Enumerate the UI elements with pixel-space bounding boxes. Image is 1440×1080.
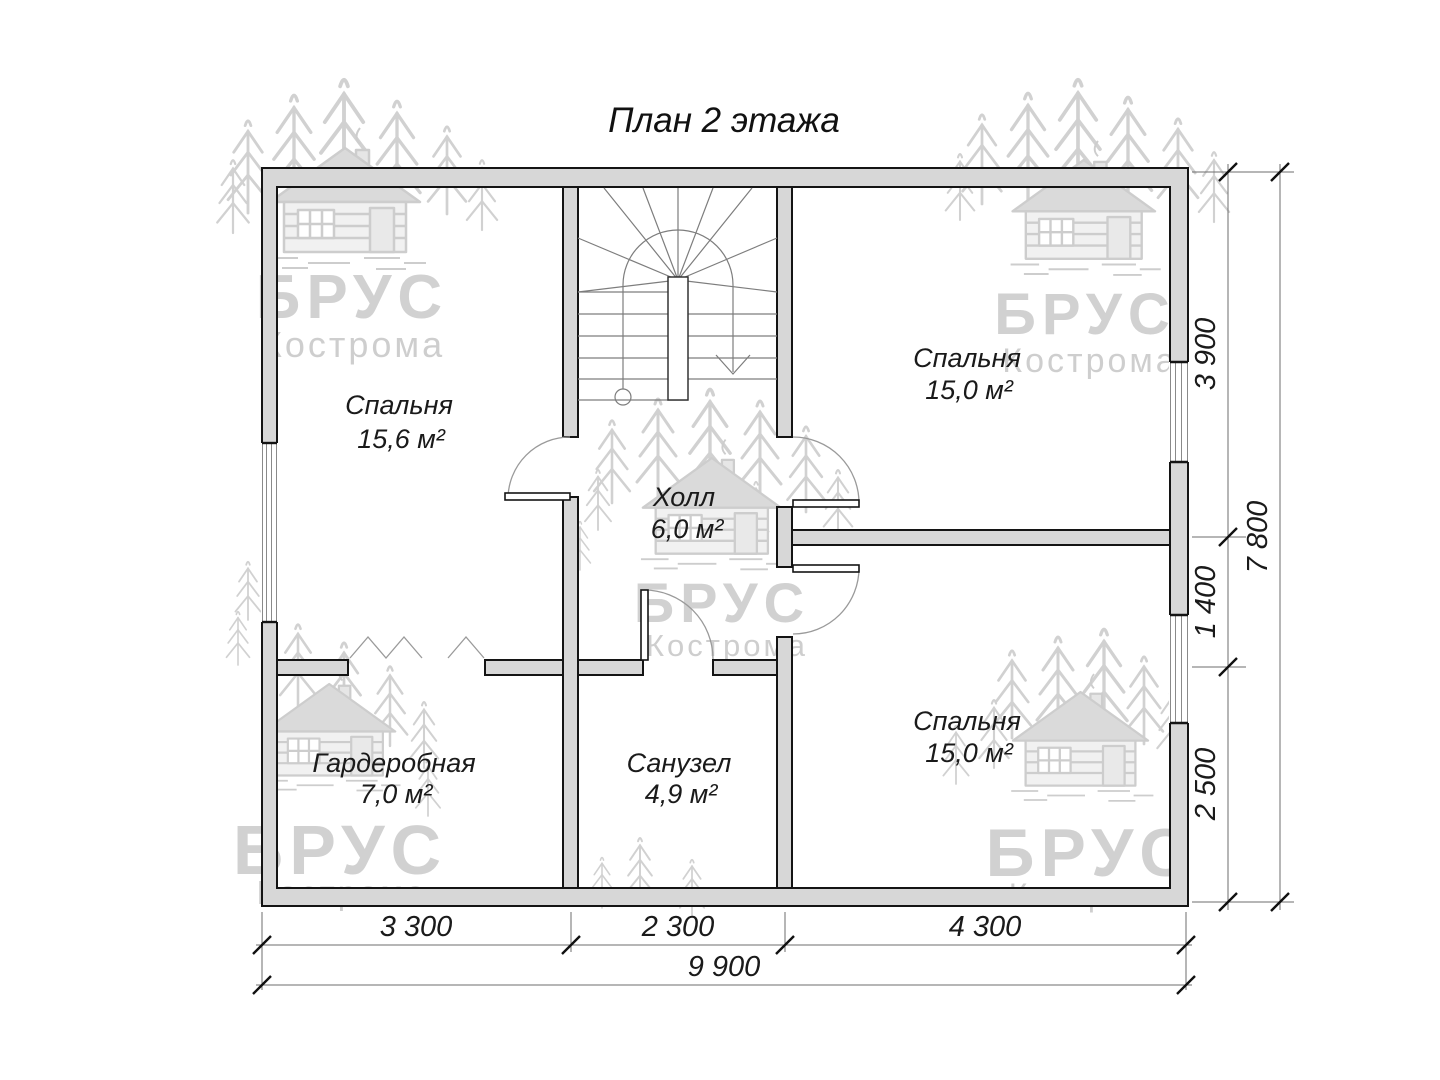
svg-text:7,0 м²: 7,0 м² — [360, 779, 434, 809]
svg-text:15,6 м²: 15,6 м² — [357, 424, 446, 454]
door-bedroom-top-left — [505, 437, 570, 500]
watermark-brand-text: БРУС — [256, 263, 448, 332]
dim-right-3: 2 500 — [1190, 748, 1222, 822]
dim-bottom-3: 4 300 — [949, 911, 1022, 943]
interior-wall — [277, 660, 348, 675]
room-label-bedroom-top-left: Спальня 15,6 м² — [345, 390, 453, 454]
dimensions-bottom: 3 300 2 300 4 300 9 900 — [253, 911, 1195, 994]
interior-wall — [485, 660, 563, 675]
svg-text:15,0 м²: 15,0 м² — [925, 375, 1014, 405]
interior-wall — [777, 187, 792, 437]
staircase — [578, 188, 777, 405]
interior-wall — [713, 660, 777, 675]
room-label-bathroom: Санузел 4,9 м² — [627, 748, 732, 809]
window-right-top — [1169, 362, 1189, 462]
window-right-bottom — [1169, 615, 1189, 723]
dim-bottom-2: 2 300 — [641, 911, 715, 943]
svg-text:6,0 м²: 6,0 м² — [651, 514, 725, 544]
svg-text:Холл: Холл — [652, 482, 715, 512]
cabin-icon — [268, 128, 426, 269]
dim-bottom-1: 3 300 — [380, 911, 453, 943]
dim-right-total: 7 800 — [1242, 501, 1274, 574]
interior-wall — [792, 530, 1170, 545]
svg-text:Спальня: Спальня — [345, 390, 453, 420]
wall-opening-chevrons — [350, 637, 484, 658]
interior-wall — [777, 507, 792, 567]
dimensions-right: 3 900 1 400 2 500 7 800 — [1190, 163, 1294, 911]
dim-bottom-total: 9 900 — [688, 951, 761, 983]
svg-text:15,0 м²: 15,0 м² — [925, 738, 1014, 768]
interior-wall — [563, 187, 578, 437]
watermark-brand-text: БРУС — [994, 282, 1176, 347]
svg-text:Спальня: Спальня — [913, 343, 1021, 373]
cabin-icon — [1011, 674, 1153, 801]
stair-newel — [668, 277, 688, 400]
watermark-city-text: Кострома — [261, 324, 445, 365]
watermark-cluster-top-left: БРУС Кострома — [217, 80, 497, 365]
window-left — [261, 443, 278, 622]
door-bedroom-top-right — [793, 437, 859, 507]
svg-text:Санузел: Санузел — [627, 748, 732, 778]
room-label-wardrobe: Гардеробная 7,0 м² — [312, 748, 475, 809]
floor-plan: БРУС Кострома БРУС Кострома — [0, 0, 1440, 1080]
svg-text:Гардеробная: Гардеробная — [312, 748, 475, 778]
dim-right-2: 1 400 — [1190, 566, 1222, 639]
floor-plan-canvas: БРУС Кострома БРУС Кострома — [0, 0, 1440, 1080]
watermark-cluster-bottom-left: БРУС Кострома — [226, 562, 704, 916]
interior-wall — [578, 660, 643, 675]
interior-wall — [777, 637, 792, 888]
svg-text:Спальня: Спальня — [913, 706, 1021, 736]
watermark-brand-text: БРУС — [634, 571, 810, 634]
interior-wall — [563, 497, 578, 888]
watermark-cluster-bottom-right: БРУС Кострома — [943, 629, 1194, 913]
watermark-city-text: Кострома — [1002, 342, 1177, 380]
dim-right-1: 3 900 — [1190, 318, 1222, 391]
page-title: План 2 этажа — [608, 101, 840, 140]
svg-text:4,9 м²: 4,9 м² — [645, 779, 719, 809]
